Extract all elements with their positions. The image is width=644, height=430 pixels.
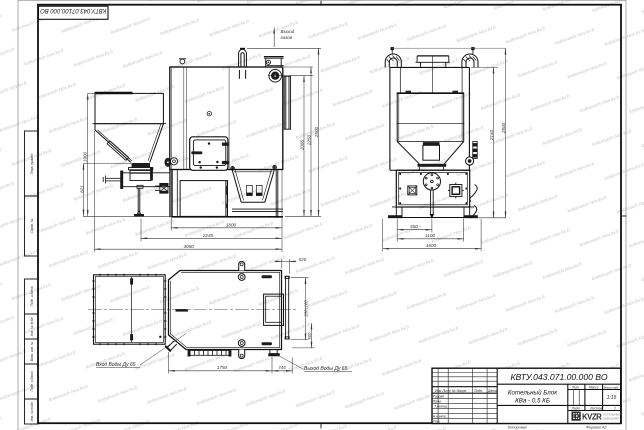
svg-text:Перв. примен.: Перв. примен.: [30, 153, 34, 174]
svg-text:Т.контр.: Т.контр.: [434, 404, 448, 408]
svg-text:1600: 1600: [426, 243, 437, 248]
svg-text:Утв.: Утв.: [433, 419, 441, 423]
svg-text:Масса: Масса: [589, 385, 599, 389]
svg-text:520: 520: [299, 257, 307, 262]
svg-text:200±100: 200±100: [304, 300, 309, 318]
svg-text:1750: 1750: [217, 365, 228, 370]
svg-text:газов: газов: [281, 35, 293, 40]
svg-text:КВТУ.043.07100.000 ВО: КВТУ.043.07100.000 ВО: [40, 7, 106, 13]
svg-text:Подп. и дата: Подп. и дата: [30, 371, 34, 391]
svg-text:1: 1: [614, 406, 616, 410]
svg-text:Подп.: Подп.: [474, 389, 483, 393]
svg-text:2245: 2245: [202, 233, 214, 238]
svg-text:КВа - 0,5 КБ: КВа - 0,5 КБ: [515, 398, 550, 405]
svg-text:Лит.: Лит.: [571, 385, 580, 389]
svg-text:Н.контр.: Н.контр.: [433, 414, 447, 418]
svg-text:Формат А2: Формат А2: [586, 425, 608, 429]
svg-text:821: 821: [79, 185, 84, 193]
svg-text:Изм Лист: Изм Лист: [435, 389, 451, 393]
svg-text:Котельный Блок: Котельный Блок: [508, 390, 558, 397]
svg-text:Разраб.: Разраб.: [433, 394, 445, 398]
svg-text:Пров.: Пров.: [433, 399, 442, 403]
svg-text:1800: 1800: [226, 222, 237, 227]
svg-text:2160: 2160: [489, 129, 494, 141]
svg-text:Масштаб: Масштаб: [604, 385, 619, 389]
svg-text:Вход Воды Ду 65: Вход Воды Ду 65: [96, 362, 136, 368]
svg-text:1:15: 1:15: [607, 395, 617, 401]
svg-text:Лист: Лист: [571, 406, 581, 410]
svg-text:Подп. и дата: Подп. и дата: [30, 286, 34, 306]
svg-text:745: 745: [278, 365, 286, 370]
svg-text:1100: 1100: [425, 233, 435, 238]
svg-text:Взам. инв. №: Взам. инв. №: [30, 341, 34, 361]
svg-text:2086: 2086: [299, 139, 304, 151]
svg-text:№ докум.: № докум.: [452, 389, 467, 393]
svg-text:3050: 3050: [184, 244, 195, 249]
svg-text:КВТУ.043.071.00.000 ВО: КВТУ.043.071.00.000 ВО: [510, 372, 607, 382]
svg-text:Дата: Дата: [487, 389, 497, 393]
svg-text:Листов: Листов: [589, 406, 603, 410]
svg-text:Выход Воды Ду 65: Выход Воды Ду 65: [304, 366, 348, 372]
svg-text:550: 550: [410, 224, 418, 229]
svg-text:1900: 1900: [82, 151, 87, 162]
svg-text:KVZR: KVZR: [582, 412, 602, 421]
svg-text:Инв. № дубл.: Инв. № дубл.: [30, 317, 34, 337]
svg-text:Копировал: Копировал: [508, 425, 528, 429]
svg-text:Справ. №: Справ. №: [30, 218, 34, 233]
svg-text:Инв. № подл.: Инв. № подл.: [30, 401, 34, 421]
svg-text:2250: 2250: [306, 134, 311, 146]
svg-text:2500: 2500: [314, 126, 319, 138]
svg-text:ЗАВОД КВР: ЗАВОД КВР: [603, 416, 619, 420]
svg-text:2500: 2500: [501, 122, 506, 134]
svg-text:Выход: Выход: [281, 29, 295, 34]
svg-text:500: 500: [307, 332, 312, 340]
